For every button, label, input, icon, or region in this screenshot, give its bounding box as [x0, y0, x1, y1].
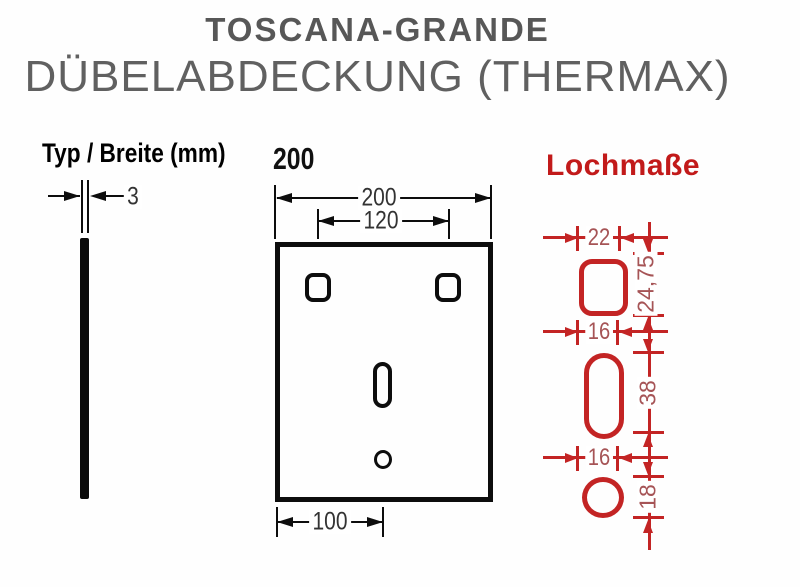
- dim-arrow-up-icon: [643, 317, 653, 330]
- slot-hole-detail: [584, 353, 624, 439]
- hole-dimensions-heading: Lochmaße: [546, 149, 700, 183]
- dimension-tick: [633, 516, 664, 519]
- dim-arrow-left-icon: [90, 191, 106, 201]
- round-hole-detail: [582, 477, 624, 518]
- dimension-tick: [576, 320, 579, 345]
- dim-arrow-right-icon: [367, 517, 383, 527]
- square-hole-height-label: 24,75: [635, 252, 658, 316]
- round-hole-height-label: 18: [637, 481, 660, 513]
- dimension-tick: [576, 446, 579, 471]
- technical-drawing-page: TOSCANA-GRANDE DÜBELABDECKUNG (THERMAX) …: [0, 0, 800, 587]
- dim-arrow-right-icon: [64, 191, 80, 201]
- dim-arrow-right-icon: [433, 216, 449, 226]
- square-hole-width-label: 22: [585, 226, 612, 250]
- dim-arrow-right-icon: [475, 193, 491, 203]
- profile-edge-line: [81, 180, 83, 233]
- slot-hole-height-label: 38: [637, 377, 660, 409]
- dimension-line: [106, 195, 124, 197]
- hole-spacing-dim-label: 120: [360, 209, 402, 234]
- dim-arrow-left-icon: [276, 193, 292, 203]
- bottom-offset-dim-label: 100: [309, 510, 351, 535]
- type-width-heading: Typ / Breite (mm): [42, 138, 226, 169]
- profile-edge-line: [87, 180, 89, 233]
- page-subtitle: DÜBELABDECKUNG (THERMAX): [0, 52, 755, 102]
- dim-arrow-left-icon: [619, 327, 632, 337]
- dimension-tick: [576, 226, 579, 251]
- dim-arrow-down-icon: [643, 462, 653, 475]
- hole-round: [374, 450, 392, 469]
- thickness-dim-label: 3: [124, 185, 142, 210]
- dim-arrow-up-icon: [643, 520, 653, 533]
- dimension-tick: [633, 475, 664, 478]
- dimension-tick: [633, 351, 664, 354]
- profile-side-view: [80, 238, 89, 499]
- dim-arrow-left-icon: [277, 517, 293, 527]
- dim-arrow-left-icon: [619, 453, 632, 463]
- page-title: TOSCANA-GRANDE: [0, 11, 755, 49]
- hole-top-left: [305, 273, 331, 302]
- dim-arrow-down-icon: [643, 239, 653, 252]
- plate-type-label: 200: [273, 141, 314, 177]
- dim-arrow-left-icon: [318, 216, 334, 226]
- round-hole-width-label: 16: [585, 446, 612, 470]
- slot-hole-width-label: 16: [585, 320, 612, 344]
- hole-top-right: [435, 273, 461, 302]
- square-hole-detail: [579, 259, 628, 316]
- dim-arrow-left-icon: [621, 233, 634, 243]
- hole-slot: [373, 362, 392, 408]
- dim-arrow-up-icon: [643, 434, 653, 447]
